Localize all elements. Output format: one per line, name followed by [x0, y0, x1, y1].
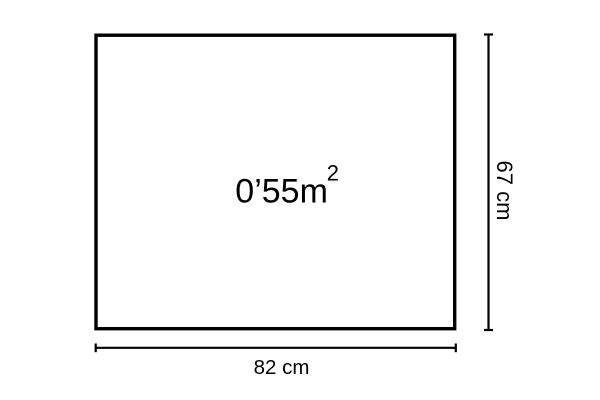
svg-text:67 cm: 67 cm: [492, 161, 517, 221]
svg-text:82 cm: 82 cm: [254, 356, 310, 379]
svg-text:2: 2: [327, 161, 339, 186]
svg-text:0’55m: 0’55m: [235, 173, 328, 211]
